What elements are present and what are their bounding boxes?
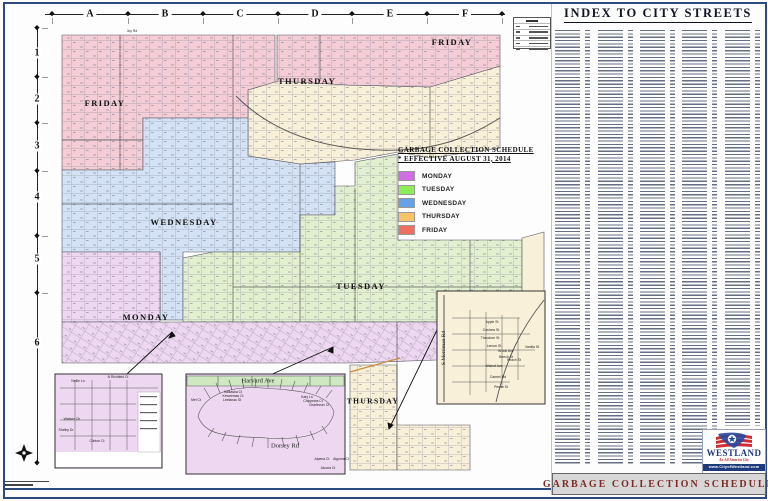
ruler-diamond: ◆ xyxy=(49,11,54,18)
ruler-diamond: ◆ xyxy=(34,168,39,175)
ruler-tick xyxy=(42,123,48,124)
ruler-diamond: ◆ xyxy=(349,11,354,18)
grid-column-label: B xyxy=(159,8,172,19)
ruler-diamond: ◆ xyxy=(200,11,205,18)
inset-street-label: Carmel Rd xyxy=(490,375,506,379)
legend-swatch-tuesday xyxy=(398,185,415,195)
legend-swatch-friday xyxy=(398,225,415,235)
index-column xyxy=(682,28,718,464)
inset-street-label: Charlevoix Ct xyxy=(309,403,329,407)
legend-item: MONDAY xyxy=(398,170,538,183)
ruler-diamond: ◆ xyxy=(34,74,39,81)
bottom-title-text: GARBAGE COLLECTION SCHEDULE xyxy=(543,479,768,490)
ruler-diamond: ◆ xyxy=(125,11,130,18)
logo-tagline: An All America City xyxy=(703,458,765,463)
zone-label-monday: MONDAY xyxy=(123,312,170,322)
grid-column-label: A xyxy=(83,8,96,19)
inset-street-label: Mel Ct xyxy=(191,398,201,402)
inset-road-label-dorsey: Dorsey Rd xyxy=(271,443,299,450)
index-column xyxy=(555,28,591,464)
ruler-diamond: ◆ xyxy=(34,233,39,240)
index-column xyxy=(640,28,676,464)
inset-street-label: Peach St xyxy=(507,358,521,362)
ruler-diamond: ◆ xyxy=(34,460,39,467)
ruler-tick xyxy=(42,293,48,294)
zone-label-thursday-north: THURSDAY xyxy=(278,76,336,86)
inset-street-label: Algoma Ct xyxy=(333,457,349,461)
city-logo: WESTLAND An All America City www.CityofW… xyxy=(702,429,766,477)
inset-street-label: Alcona Ct xyxy=(321,466,336,470)
inset-street-label: Walnut Ave xyxy=(486,364,503,368)
index-column xyxy=(598,28,634,464)
ruler-tick xyxy=(42,171,48,172)
logo-name: WESTLAND xyxy=(703,449,765,458)
ruler-tick xyxy=(42,236,48,237)
grid-row-label: 3 xyxy=(32,141,43,152)
ruler-diamond: ◆ xyxy=(424,11,429,18)
map-note-microtext xyxy=(5,484,33,485)
legend-label: FRIDAY xyxy=(422,227,447,234)
inset-road-label-merriman: S Merriman Rd xyxy=(441,331,447,365)
ruler-diamond: ◆ xyxy=(275,11,280,18)
zone-label-thursday-south: THURSDAY xyxy=(347,397,400,406)
grid-row-label: 2 xyxy=(32,94,43,105)
index-title: INDEX TO CITY STREETS xyxy=(553,4,763,23)
inset-street-label: Alpena Ct xyxy=(315,457,330,461)
inset-street-label: Shelby Dr xyxy=(59,428,74,432)
legend-label: THURSDAY xyxy=(422,213,460,220)
ruler-tick xyxy=(128,18,129,24)
legend-label: MONDAY xyxy=(422,173,452,180)
zone-label-friday-northeast: FRIDAY xyxy=(432,37,473,47)
ruler-tick xyxy=(42,77,48,78)
inset-street-label: Watson Cir xyxy=(64,417,81,421)
legend-label: TUESDAY xyxy=(422,186,455,193)
inset-southwest xyxy=(55,374,162,468)
legend-swatch-wednesday xyxy=(398,198,415,208)
legend-item: THURSDAY xyxy=(398,210,538,223)
ruler-diamond: ◆ xyxy=(34,290,39,297)
legend-subtitle: * EFFECTIVE AUGUST 31, 2014 xyxy=(398,155,538,164)
ruler-diamond: ◆ xyxy=(499,11,504,18)
inset-street-label: Clinton Ct xyxy=(90,439,105,443)
legend-title: GARBAGE COLLECTION SCHEDULE xyxy=(398,146,538,155)
grid-row-label: 4 xyxy=(32,192,43,203)
zone-label-wednesday: WEDNESDAY xyxy=(150,217,217,227)
ruler-tick xyxy=(502,18,503,24)
inset-street-label: Theodore St xyxy=(481,336,500,340)
ruler-diamond: ◆ xyxy=(34,25,39,32)
page: ◆ ◆ ◆ ◆ ◆ ◆ ◆ A B C D E F ◆ ◆ ◆ ◆ ◆ ◆ ◆ … xyxy=(0,0,768,501)
legend-swatch-monday xyxy=(398,171,415,181)
legend-swatch-thursday xyxy=(398,212,415,222)
map-note-microtext xyxy=(5,481,49,482)
logo-website: www.CityofWestland.com xyxy=(703,464,765,471)
inset-street-label: Lemon St xyxy=(487,344,502,348)
ruler-tick xyxy=(278,18,279,24)
inset-street-label: Pecan St xyxy=(494,385,508,389)
grid-column-label: C xyxy=(233,8,246,19)
legend-item: WEDNESDAY xyxy=(398,197,538,210)
ruler-tick xyxy=(203,18,204,24)
inset-street-label: Apple St xyxy=(486,320,499,324)
inset-street-label: Leelanau St xyxy=(223,398,241,402)
index-column xyxy=(725,28,761,426)
grid-column-label: D xyxy=(308,8,321,19)
zone-label-friday-west: FRIDAY xyxy=(85,98,126,108)
grid-row-label: 6 xyxy=(32,338,43,349)
bottom-title-bar: GARBAGE COLLECTION SCHEDULE xyxy=(552,473,766,495)
road-label-joy-rd: Joy Rd xyxy=(127,29,138,33)
ruler-tick xyxy=(427,18,428,24)
legend-label: WEDNESDAY xyxy=(422,200,466,207)
ruler-tick xyxy=(52,18,53,24)
legend-item: FRIDAY xyxy=(398,224,538,237)
inset-street-label: N Richfield Ct xyxy=(108,375,129,379)
flag-eagle-icon xyxy=(714,432,754,449)
grid-column-label: F xyxy=(459,8,471,19)
compass-icon xyxy=(15,444,33,462)
ruler-tick xyxy=(352,18,353,24)
ruler-diamond: ◆ xyxy=(34,120,39,127)
legend: GARBAGE COLLECTION SCHEDULE * EFFECTIVE … xyxy=(398,146,538,237)
grid-row-label: 5 xyxy=(32,254,43,265)
legend-item: TUESDAY xyxy=(398,183,538,196)
inset-street-label: Vanilla St xyxy=(525,345,539,349)
inset-street-label: Nellie Ln xyxy=(71,379,84,383)
inset-street-label: Cashew St xyxy=(483,328,499,332)
ruler-tick xyxy=(42,28,48,29)
grid-row-label: 1 xyxy=(32,48,43,59)
inset-street-label: Brook Ave xyxy=(498,349,513,353)
grid-column-label: E xyxy=(384,8,397,19)
map-key-box xyxy=(513,17,551,49)
inset-road-label-harvard: Harvard Ave xyxy=(242,378,275,385)
zone-label-tuesday: TUESDAY xyxy=(336,281,386,291)
